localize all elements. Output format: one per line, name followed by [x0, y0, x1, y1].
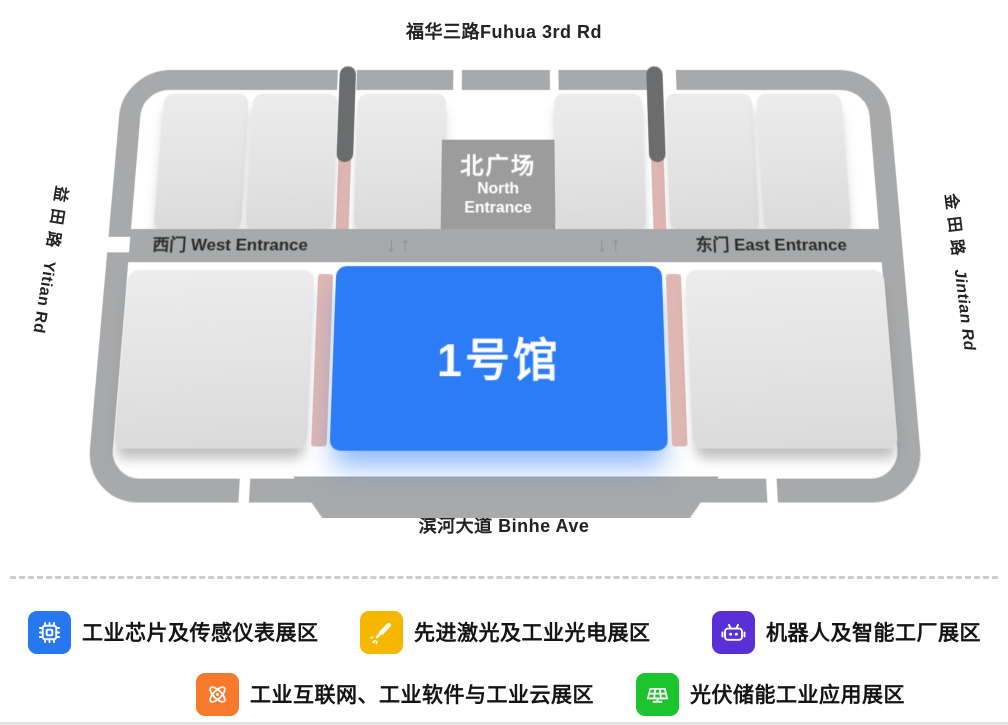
- north-hall-2: [246, 94, 338, 231]
- legend-item-label: 工业芯片及传感仪表展区: [82, 617, 319, 647]
- legend-item-robot: 机器人及智能工厂展区: [712, 610, 981, 654]
- road-label-north: 福华三路Fuhua 3rd Rd: [0, 18, 1008, 44]
- legend-item-chips: 工业芯片及传感仪表展区: [28, 610, 319, 654]
- north-hall-1: [154, 94, 249, 231]
- north-hall-5: [665, 94, 759, 231]
- west-entrance-label: 西门 West Entrance: [151, 229, 308, 262]
- road-gap: [453, 66, 462, 93]
- dashed-separator: [10, 576, 998, 579]
- south-road-apron: [287, 476, 725, 517]
- laser-icon: [360, 611, 403, 654]
- legend-item-label: 工业互联网、工业软件与工业云展区: [250, 679, 594, 709]
- legend-item-laser: 先进激光及工业光电展区: [360, 610, 651, 654]
- venue-map: 北广场 North Entrance 西门 West Entrance 东门 E…: [0, 59, 1008, 518]
- gate-arrows-west: ↓↑: [385, 229, 414, 262]
- south-hall-east: [686, 270, 899, 449]
- east-entrance-label: 东门 East Entrance: [695, 229, 848, 262]
- industrial-internet-icon: [196, 673, 239, 716]
- north-plaza-en2: Entrance: [441, 199, 556, 218]
- south-hall-west: [114, 270, 314, 449]
- robot-icon: [712, 611, 755, 654]
- road-gap: [550, 66, 559, 93]
- hall-1-label: 1号馆: [437, 324, 561, 390]
- road-gap: [238, 474, 250, 507]
- hall-1: 1号馆: [330, 266, 668, 451]
- legend-item-label: 机器人及智能工厂展区: [766, 617, 981, 647]
- north-plaza: 北广场 North Entrance: [441, 140, 556, 229]
- legend-item-label: 先进激光及工业光电展区: [414, 617, 651, 647]
- north-hall-6: [756, 94, 851, 231]
- solar-panel-icon: [636, 673, 679, 716]
- gate-arrows-east: ↓↑: [596, 229, 625, 262]
- north-plaza-en1: North: [441, 180, 555, 199]
- north-hall-4: [554, 94, 647, 231]
- corridor-west-walkway: [336, 66, 356, 162]
- chip-icon: [28, 611, 71, 654]
- legend-item-solar: 光伏储能工业应用展区: [636, 672, 905, 716]
- legend-item-label: 光伏储能工业应用展区: [690, 679, 905, 709]
- corridor-east-walkway: [646, 66, 666, 162]
- north-plaza-zh: 北广场: [441, 147, 555, 180]
- legend-item-industrial-internet: 工业互联网、工业软件与工业云展区: [196, 672, 594, 716]
- road-gap: [766, 474, 778, 507]
- north-hall-3: [354, 94, 447, 231]
